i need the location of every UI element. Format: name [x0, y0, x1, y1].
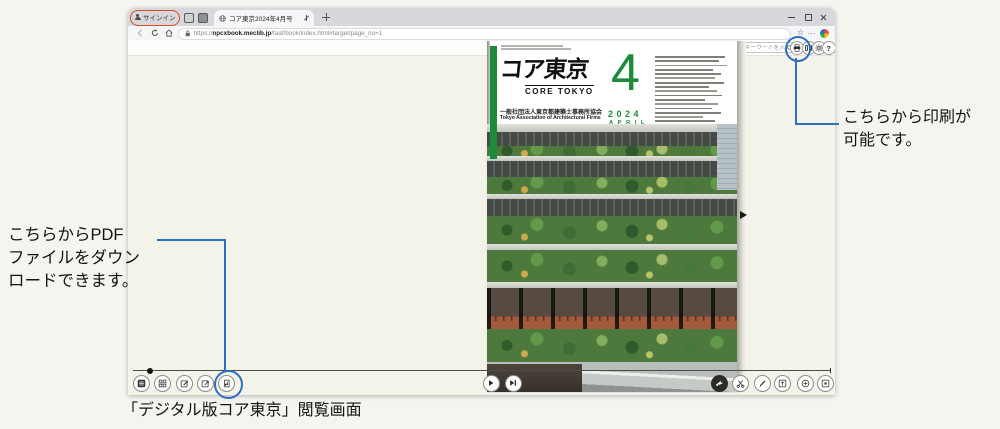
skip-end-icon — [509, 379, 517, 387]
cover-issue-number: 4 — [611, 47, 640, 99]
text-tool-icon — [778, 379, 787, 388]
cover-org-english: Tokyo Association of Architectural Firms — [500, 115, 601, 121]
maximize-icon[interactable] — [804, 14, 811, 21]
profile-avatar[interactable] — [820, 29, 829, 38]
help-icon: ? — [826, 44, 831, 53]
tab-close-icon[interactable] — [303, 15, 309, 21]
new-tab-button[interactable] — [322, 13, 330, 21]
reload-icon[interactable] — [151, 29, 159, 37]
page-slider-end-tick — [830, 368, 832, 373]
fit-view-button[interactable] — [817, 375, 834, 392]
move-tool-button[interactable] — [711, 375, 728, 392]
window-controls — [788, 8, 831, 26]
memo-button[interactable] — [197, 375, 214, 392]
clip-button[interactable] — [732, 375, 749, 392]
pdf-callout-text: こちらからPDF ファイルをダウン ロードできます。 — [8, 224, 140, 293]
cover-green-bar — [490, 46, 497, 159]
workspaces-icon[interactable] — [184, 13, 194, 23]
browser-toolbar: https://npcxbook.meclib.jp/taaf/book/ind… — [128, 26, 835, 41]
browser-tab[interactable]: コア東京2024年4月号 — [214, 10, 314, 26]
draw-button[interactable] — [754, 375, 771, 392]
print-callout-text: こちらから印刷が 可能です。 — [843, 106, 971, 152]
zoom-target-icon — [801, 379, 810, 388]
url-text: https://npcxbook.meclib.jp/taaf/book/ind… — [194, 30, 383, 37]
memo-icon — [201, 379, 210, 388]
index-button[interactable] — [133, 375, 150, 392]
help-button[interactable]: ? — [822, 41, 836, 55]
pdf-highlight-circle — [214, 370, 243, 399]
bookmark-edit-icon — [180, 379, 189, 388]
text-tool-button[interactable] — [774, 375, 791, 392]
tab-actions-icon[interactable] — [198, 13, 208, 23]
cover-logo-subtitle: CORE TOKYO — [525, 85, 594, 96]
pdf-callout-line-vertical — [224, 239, 226, 371]
play-icon — [487, 379, 495, 387]
fit-view-icon — [821, 379, 830, 388]
move-tool-icon — [715, 379, 724, 388]
cover-issue-year: 2024 — [608, 109, 642, 119]
thumbnails-icon — [158, 379, 167, 388]
lock-icon — [185, 30, 191, 37]
globe-icon — [219, 15, 226, 22]
home-icon[interactable] — [165, 29, 173, 37]
browser-menu-icon[interactable]: … — [808, 26, 817, 38]
browser-window: サインイン コア東京2024年4月号 — [128, 8, 835, 395]
book-viewer: ページ : / 28 — [128, 40, 835, 395]
signin-highlight-oval — [130, 10, 180, 26]
page-slider-handle[interactable] — [147, 368, 153, 374]
scissors-icon — [736, 379, 745, 388]
pencil-icon — [758, 379, 767, 388]
address-bar[interactable]: https://npcxbook.meclib.jp/taaf/book/ind… — [178, 28, 791, 41]
back-icon[interactable] — [136, 29, 144, 37]
autoplay-button[interactable] — [483, 375, 500, 392]
cover-photo — [487, 124, 737, 392]
skip-to-end-button[interactable] — [505, 375, 522, 392]
print-highlight-circle — [785, 36, 811, 62]
bookmark-button[interactable] — [176, 375, 193, 392]
zoom-button[interactable] — [797, 375, 814, 392]
index-icon — [137, 379, 146, 388]
pdf-callout-line-horizontal — [157, 239, 226, 241]
print-callout-line-vertical — [795, 58, 797, 124]
page-slider-track[interactable] — [133, 370, 830, 371]
screenshot-canvas: { "browser": { "signin_label": "サインイン", … — [0, 0, 1000, 429]
cover-logo-title: コア東京 — [499, 58, 589, 81]
browser-tab-strip: サインイン コア東京2024年4月号 — [128, 8, 835, 26]
thumbnails-button[interactable] — [154, 375, 171, 392]
close-icon[interactable] — [820, 14, 827, 21]
minimize-icon[interactable] — [788, 14, 795, 21]
magazine-page[interactable]: コア東京 CORE TOKYO 一般社団法人東京都建築士事務所協会 Tokyo … — [487, 41, 737, 392]
print-callout-line-horizontal — [795, 123, 839, 125]
cover-credit-line — [501, 48, 571, 50]
cover-table-of-contents — [655, 56, 733, 129]
next-page-arrow[interactable] — [740, 211, 747, 219]
cover-credit-line — [501, 45, 563, 47]
screenshot-caption: 「デジタル版コア東京」閲覧画面 — [122, 396, 362, 420]
tab-title: コア東京2024年4月号 — [229, 13, 300, 23]
